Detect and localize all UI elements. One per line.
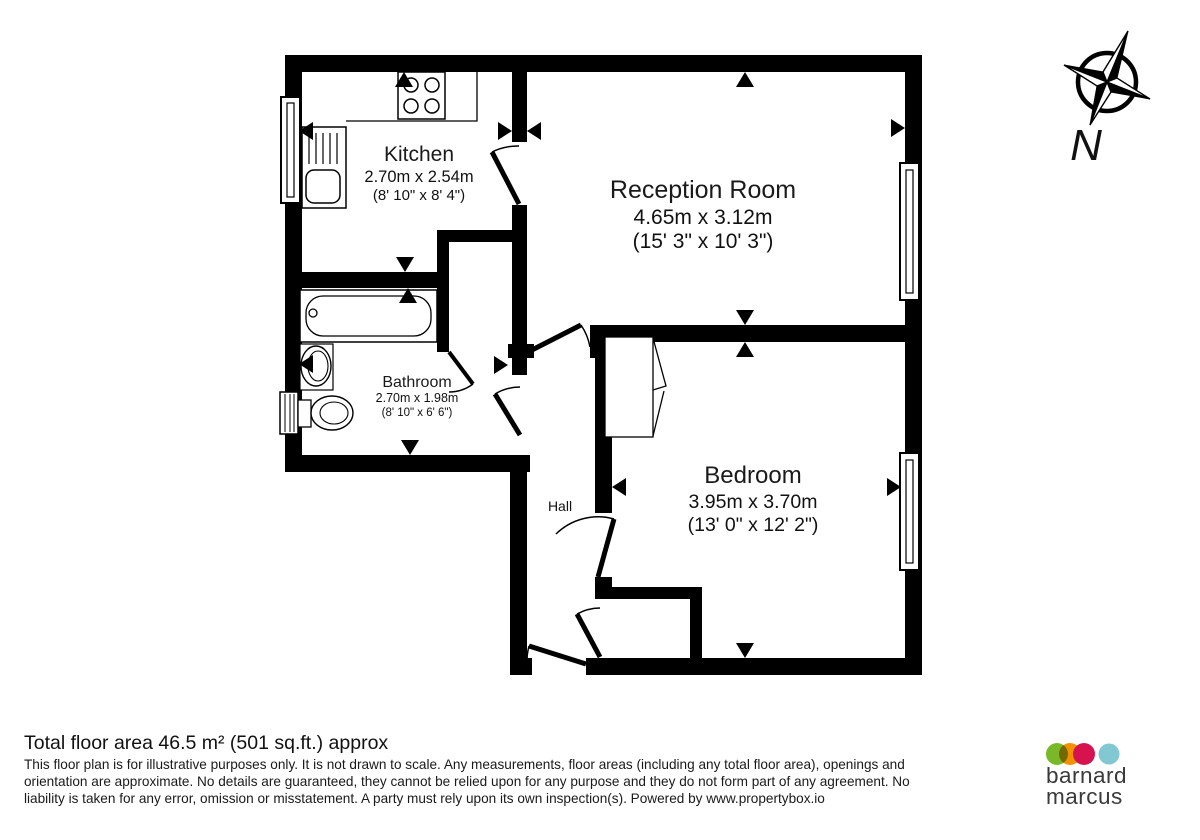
walls bbox=[285, 55, 922, 675]
kitchen-window-icon bbox=[281, 97, 300, 203]
hall-label: Hall bbox=[548, 498, 572, 514]
bedroom-door-icon bbox=[556, 517, 614, 577]
wall-bottom-b bbox=[586, 658, 922, 675]
disclaimer-line-1: This floor plan is for illustrative purp… bbox=[24, 757, 905, 772]
brand-logo-dots bbox=[1046, 743, 1120, 765]
hall-closet-door-icon bbox=[577, 608, 600, 657]
sink-icon bbox=[302, 127, 346, 208]
arrow-bedroom-down-icon bbox=[736, 643, 754, 658]
bathroom-metric: 2.70m x 1.98m bbox=[376, 391, 459, 405]
bathroom-label: Bathroom bbox=[382, 374, 451, 391]
north-label: N bbox=[1070, 121, 1102, 170]
kitchen-door-icon bbox=[492, 146, 519, 204]
arrow-kitchen-down-icon bbox=[396, 257, 414, 272]
wall-kitchen-reception-upper bbox=[512, 72, 527, 142]
brand-name: barnard marcus bbox=[1046, 765, 1127, 807]
bathtub-icon bbox=[300, 290, 437, 342]
wall-closet-top bbox=[595, 587, 702, 599]
floorplan-canvas: Kitchen 2.70m x 2.54m (8' 10" x 8' 4") R… bbox=[0, 0, 1200, 840]
arrow-bedroom-left-icon bbox=[612, 478, 626, 496]
reception-imperial: (15' 3" x 10' 3") bbox=[633, 230, 774, 253]
arrow-bedroom-up-icon bbox=[736, 342, 754, 357]
kitchen-imperial: (8' 10" x 8' 4") bbox=[373, 187, 465, 204]
front-door-icon bbox=[527, 646, 586, 664]
bathroom-imperial: (8' 10" x 6' 6") bbox=[382, 407, 453, 419]
arrow-reception-down-icon bbox=[736, 310, 754, 325]
arrow-reception-left-icon bbox=[527, 122, 541, 140]
reception-window-icon bbox=[900, 163, 919, 300]
compass-rose-icon: N bbox=[1064, 31, 1150, 170]
cupboard-door-icon bbox=[449, 352, 473, 392]
reception-door-icon bbox=[530, 325, 590, 351]
total-floor-area: Total floor area 46.5 m² (501 sq.ft.) ap… bbox=[24, 732, 388, 755]
wall-cupboard-top bbox=[437, 230, 527, 242]
arrow-kitchen-right-icon bbox=[498, 122, 512, 140]
doors bbox=[449, 146, 614, 664]
disclaimer-line-3: liability is taken for any error, omissi… bbox=[24, 791, 825, 806]
bedroom-metric: 3.95m x 3.70m bbox=[689, 491, 818, 513]
floorplan-drawing: Kitchen 2.70m x 2.54m (8' 10" x 8' 4") R… bbox=[0, 0, 1200, 840]
kitchen-metric: 2.70m x 2.54m bbox=[364, 168, 473, 186]
brand-name-line2: marcus bbox=[1046, 786, 1127, 807]
kitchen-label: Kitchen bbox=[384, 143, 454, 166]
wall-cupboard-left bbox=[437, 230, 449, 352]
wall-top bbox=[285, 55, 922, 72]
arrow-bedroom-right-icon bbox=[887, 478, 901, 496]
arrow-bathroom-right-icon bbox=[494, 356, 508, 374]
logo-dot-crimson bbox=[1073, 743, 1095, 765]
arrow-reception-right-icon bbox=[891, 119, 905, 137]
disclaimer-line-2: orientation are approximate. No details … bbox=[24, 774, 910, 789]
bedroom-imperial: (13' 0" x 12' 2") bbox=[688, 514, 819, 536]
bedroom-window-icon bbox=[900, 453, 919, 570]
wardrobe-icon bbox=[605, 337, 666, 437]
logo-dot-blue bbox=[1099, 744, 1120, 765]
brand-name-line1: barnard bbox=[1046, 765, 1127, 786]
arrow-bathroom-down-icon bbox=[401, 440, 419, 455]
arrow-reception-up-icon bbox=[736, 72, 754, 87]
toilet-icon bbox=[280, 392, 353, 434]
wall-closet-right bbox=[690, 587, 702, 662]
wall-kitchen-bathroom bbox=[285, 272, 437, 288]
reception-label: Reception Room bbox=[610, 176, 796, 204]
wall-right bbox=[905, 55, 922, 675]
bedroom-label: Bedroom bbox=[704, 462, 801, 489]
reception-metric: 4.65m x 3.12m bbox=[634, 206, 773, 229]
bathroom-door-icon bbox=[495, 387, 520, 435]
wall-bathroom-bottom bbox=[285, 455, 530, 472]
wall-hall-left bbox=[510, 455, 527, 675]
wall-bottom-a bbox=[510, 658, 532, 675]
